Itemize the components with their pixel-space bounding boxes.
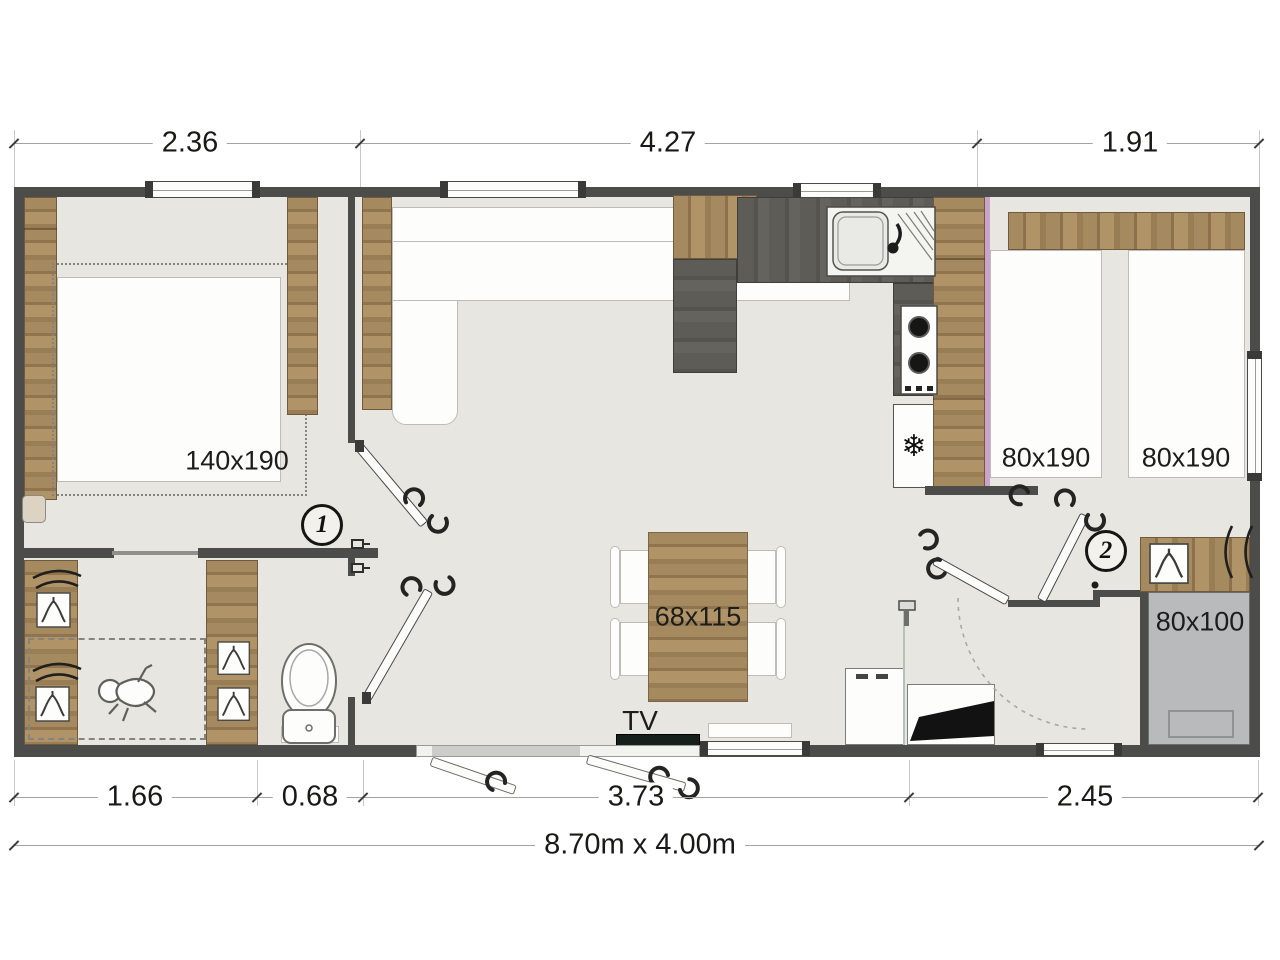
washbasin-icon bbox=[1150, 544, 1188, 583]
switch-icon bbox=[352, 564, 370, 572]
door-showerroom bbox=[917, 528, 1010, 605]
dimension-bottom-4: 2.45 bbox=[1048, 783, 1122, 812]
overall-size-label: 8.70m x 4.00m bbox=[535, 831, 745, 860]
room-number-2: 2 bbox=[1085, 530, 1127, 572]
washbasin-icon bbox=[36, 687, 69, 721]
extension-line bbox=[257, 760, 258, 806]
door-bedroom2 bbox=[958, 484, 1108, 729]
heater-unit bbox=[910, 701, 994, 741]
washbasin-icon bbox=[218, 688, 249, 720]
detail-layer bbox=[0, 0, 1280, 960]
baby-figure bbox=[99, 665, 156, 721]
towel-rail bbox=[1226, 526, 1253, 578]
door-bedroom1 bbox=[355, 440, 451, 535]
extension-line bbox=[909, 760, 910, 806]
floor-plan: 2.36 4.27 1.91 140x190 68x115 TV bbox=[0, 0, 1280, 960]
towel-rail bbox=[33, 571, 81, 588]
switch-icon bbox=[352, 540, 370, 548]
dimension-bottom-3: 3.73 bbox=[599, 783, 673, 812]
room-number-1: 1 bbox=[301, 504, 343, 546]
dimension-bottom-2: 0.68 bbox=[273, 783, 347, 812]
extension-line bbox=[1258, 760, 1259, 806]
washbasin-icon bbox=[218, 642, 249, 674]
washbasin-icon bbox=[37, 593, 70, 627]
extension-line bbox=[363, 760, 364, 806]
kitchen-sink bbox=[827, 207, 935, 276]
towel-rail bbox=[33, 664, 81, 681]
entry-door-left bbox=[430, 757, 516, 794]
tap-fixture bbox=[899, 601, 915, 626]
extension-line bbox=[14, 760, 15, 806]
toilet bbox=[282, 644, 336, 743]
door-bathroom bbox=[362, 574, 456, 704]
stove bbox=[901, 306, 937, 394]
dimension-bottom-1: 1.66 bbox=[98, 783, 172, 812]
